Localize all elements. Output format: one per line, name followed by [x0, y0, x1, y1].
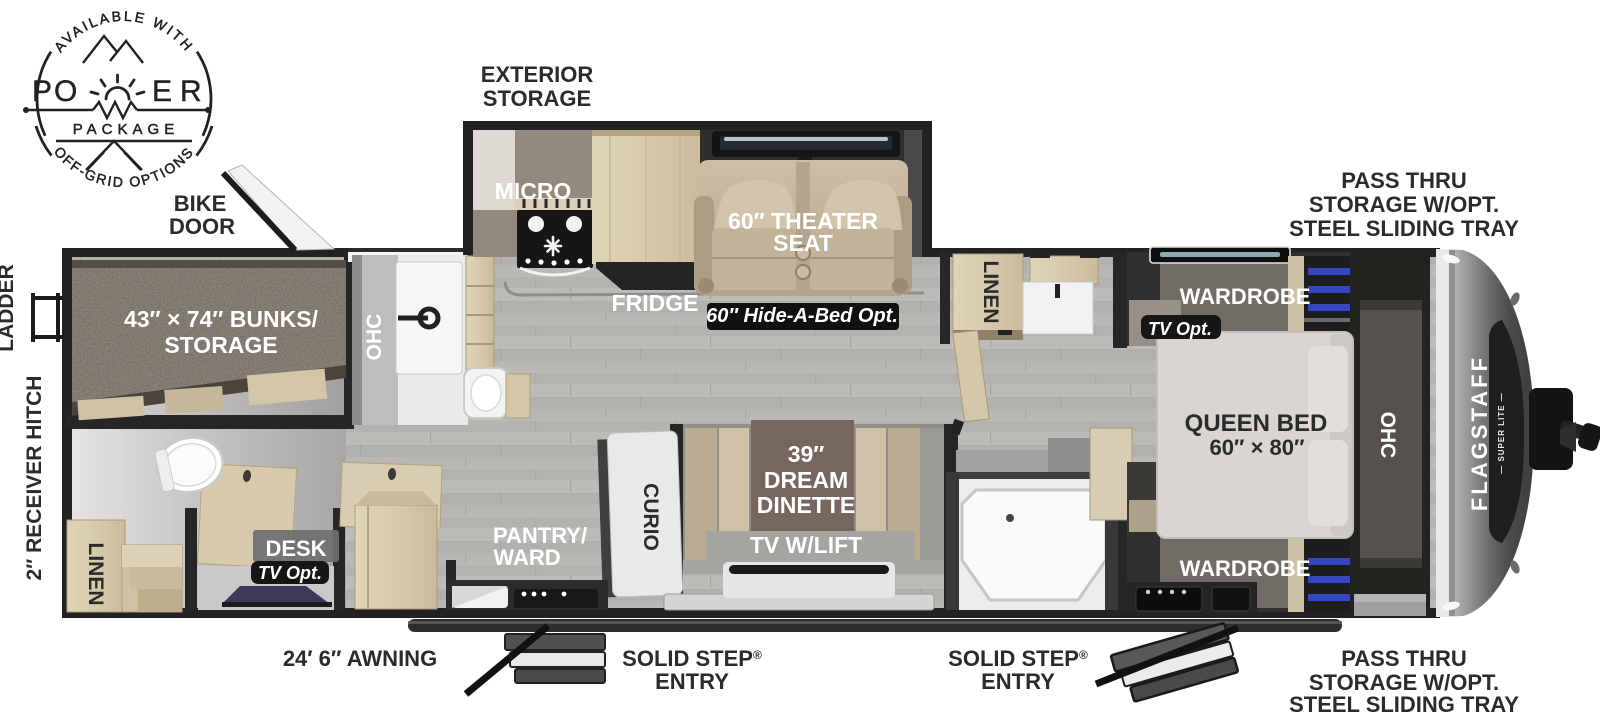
- svg-text:LINEN: LINEN: [979, 261, 1002, 324]
- svg-text:E: E: [152, 75, 172, 108]
- svg-text:60″ Hide-A-Bed Opt.: 60″ Hide-A-Bed Opt.: [706, 305, 898, 327]
- svg-text:WARD: WARD: [493, 545, 560, 570]
- svg-text:TV Opt.: TV Opt.: [1148, 319, 1212, 339]
- svg-text:EXTERIOR: EXTERIOR: [481, 62, 594, 87]
- svg-text:ENTRY: ENTRY: [981, 669, 1055, 694]
- svg-text:WARDROBE: WARDROBE: [1180, 556, 1311, 581]
- svg-text:PASS THRU: PASS THRU: [1341, 168, 1467, 193]
- svg-text:39″: 39″: [788, 441, 825, 467]
- svg-text:OHC: OHC: [1376, 412, 1399, 459]
- svg-text:STORAGE: STORAGE: [164, 332, 277, 358]
- svg-text:SOLID STEP®: SOLID STEP®: [622, 646, 762, 671]
- svg-text:2″ RECEIVER HITCH: 2″ RECEIVER HITCH: [23, 376, 46, 581]
- svg-text:SOLID STEP®: SOLID STEP®: [948, 646, 1088, 671]
- svg-text:STORAGE W/OPT.: STORAGE W/OPT.: [1309, 192, 1499, 217]
- svg-text:R: R: [180, 75, 202, 108]
- svg-text:QUEEN BED: QUEEN BED: [1185, 410, 1328, 437]
- svg-text:LINEN: LINEN: [84, 543, 107, 606]
- svg-text:FLAGSTAFF: FLAGSTAFF: [1467, 355, 1492, 511]
- svg-text:DINETTE: DINETTE: [757, 492, 855, 518]
- svg-text:SEAT: SEAT: [773, 230, 833, 256]
- svg-text:— SUPER LITE —: — SUPER LITE —: [1497, 392, 1506, 474]
- svg-text:BIKE: BIKE: [174, 191, 227, 216]
- svg-text:STEEL SLIDING TRAY: STEEL SLIDING TRAY: [1289, 216, 1519, 241]
- svg-text:60″ × 80″: 60″ × 80″: [1209, 435, 1305, 460]
- svg-text:DREAM: DREAM: [764, 467, 848, 493]
- svg-text:PACKAGE: PACKAGE: [73, 121, 179, 138]
- svg-text:PASS THRU: PASS THRU: [1341, 646, 1467, 671]
- svg-text:LADDER: LADDER: [0, 264, 18, 352]
- svg-text:O: O: [54, 75, 77, 108]
- svg-text:DESK: DESK: [265, 536, 326, 561]
- svg-text:CURIO: CURIO: [639, 483, 662, 551]
- svg-text:OHC: OHC: [363, 314, 386, 361]
- svg-text:STORAGE: STORAGE: [483, 86, 591, 111]
- svg-text:ENTRY: ENTRY: [655, 669, 729, 694]
- svg-text:P: P: [32, 75, 52, 108]
- svg-text:DOOR: DOOR: [169, 214, 235, 239]
- svg-text:TV Opt.: TV Opt.: [258, 563, 322, 583]
- svg-text:24′ 6″ AWNING: 24′ 6″ AWNING: [283, 646, 437, 671]
- svg-text:MICRO: MICRO: [495, 178, 572, 204]
- svg-text:FRIDGE: FRIDGE: [612, 290, 699, 316]
- svg-text:WARDROBE: WARDROBE: [1180, 284, 1311, 309]
- svg-text:43″ × 74″ BUNKS/: 43″ × 74″ BUNKS/: [124, 306, 319, 332]
- svg-text:STEEL SLIDING TRAY: STEEL SLIDING TRAY: [1289, 692, 1519, 713]
- svg-text:TV W/LIFT: TV W/LIFT: [750, 532, 862, 558]
